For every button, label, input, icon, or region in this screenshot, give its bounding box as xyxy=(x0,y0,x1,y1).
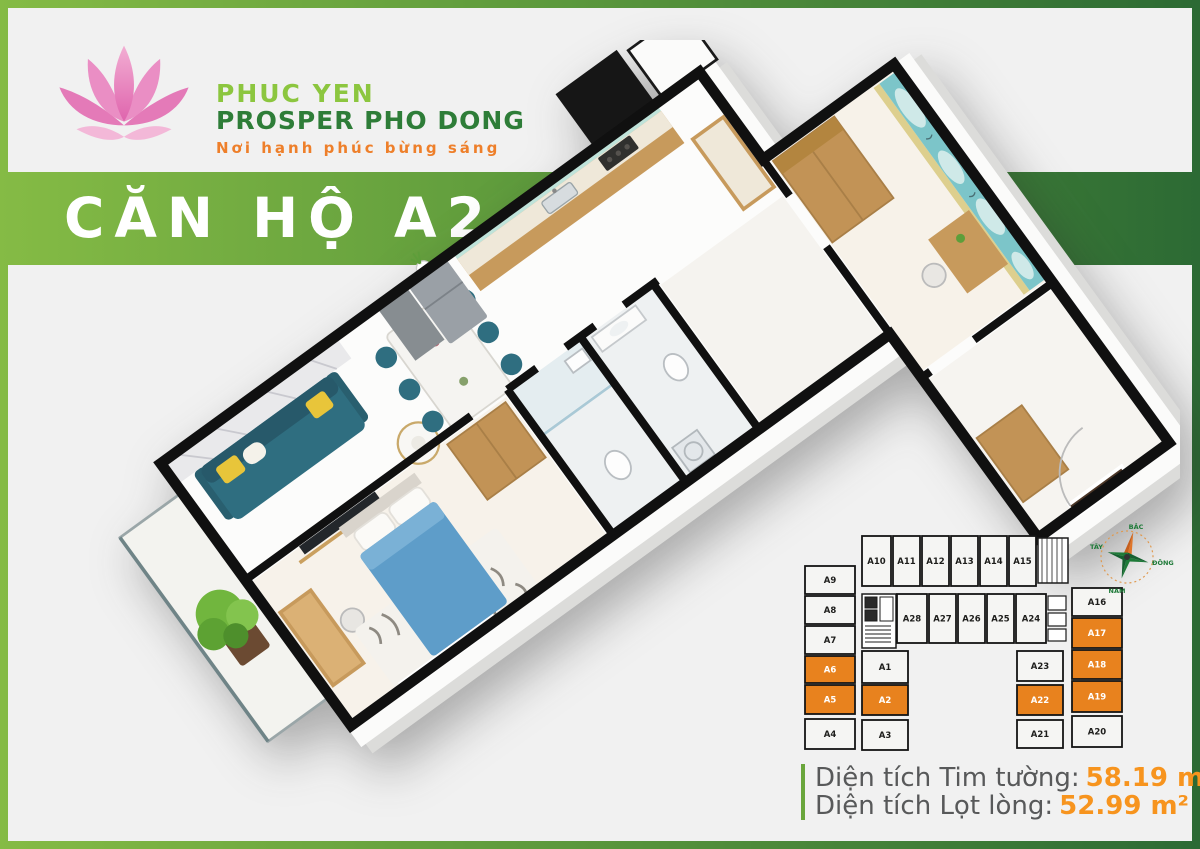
keyplan-unit-label-A2: A2 xyxy=(879,696,892,706)
keyplan-unit-label-A26: A26 xyxy=(962,615,980,625)
area-label-gross: Diện tích Tim tường: xyxy=(815,763,1080,793)
keyplan-unit-label-A12: A12 xyxy=(926,557,944,567)
keyplan-unit-label-A28: A28 xyxy=(903,615,921,625)
keyplan-unit-label-A10: A10 xyxy=(867,557,885,567)
brand-logo: PHUC YEN PROSPER PHO DONG Nơi hạnh phúc … xyxy=(48,36,525,156)
keyplan-unit-label-A27: A27 xyxy=(933,615,951,625)
brand-tagline: Nơi hạnh phúc bừng sáng xyxy=(216,140,525,156)
floor-keyplan: A9A8A7A6A5A4A1A2A3A10A11A12A13A14A15A28A… xyxy=(795,523,1175,771)
keyplan-unit-label-A16: A16 xyxy=(1088,598,1106,608)
keyplan-unit-label-A22: A22 xyxy=(1031,696,1049,706)
keyplan-unit-label-A17: A17 xyxy=(1088,629,1106,639)
keyplan-unit-label-A5: A5 xyxy=(824,696,837,706)
keyplan-unit-label-A11: A11 xyxy=(897,557,915,567)
keyplan-unit-label-A1: A1 xyxy=(879,663,892,673)
keyplan-unit-label-A14: A14 xyxy=(984,557,1002,567)
brand-name-line1: PHUC YEN xyxy=(216,80,525,107)
keyplan-unit-label-A20: A20 xyxy=(1088,728,1106,738)
keyplan-unit-label-A4: A4 xyxy=(824,730,837,740)
area-row-gross: Diện tích Tim tường:58.19 m² xyxy=(815,764,1200,792)
keyplan-unit-label-A13: A13 xyxy=(955,557,973,567)
keyplan-unit-label-A8: A8 xyxy=(824,606,837,616)
compass-west-label: TÂY xyxy=(1090,542,1103,551)
compass-south-label: NAM xyxy=(1109,587,1126,595)
area-value-gross: 58.19 m² xyxy=(1086,763,1200,793)
area-info: Diện tích Tim tường:58.19 m² Diện tích L… xyxy=(801,764,1200,820)
brochure-page: CĂN HỘ A2 PHUC YEN PROSPER PHO DONG Nơi … xyxy=(0,0,1200,849)
keyplan-unit-label-A7: A7 xyxy=(824,636,837,646)
keyplan-unit-label-A21: A21 xyxy=(1031,730,1049,740)
compass-east-label: ĐÔNG xyxy=(1152,558,1174,567)
area-label-net: Diện tích Lọt lòng: xyxy=(815,791,1053,821)
brand-text: PHUC YEN PROSPER PHO DONG Nơi hạnh phúc … xyxy=(216,36,525,156)
keyplan-unit-label-A15: A15 xyxy=(1013,557,1031,567)
compass-north-label: BẮC xyxy=(1129,523,1144,531)
keyplan-unit-label-A23: A23 xyxy=(1031,662,1049,672)
keyplan-unit-label-A9: A9 xyxy=(824,576,837,586)
keyplan-unit-label-A6: A6 xyxy=(824,666,837,676)
keyplan-unit-label-A3: A3 xyxy=(879,731,892,741)
keyplan-units: A9A8A7A6A5A4A1A2A3A10A11A12A13A14A15A28A… xyxy=(805,536,1122,750)
keyplan-unit-label-A19: A19 xyxy=(1088,693,1106,703)
lotus-icon xyxy=(48,36,200,154)
area-row-net: Diện tích Lọt lòng:52.99 m² xyxy=(815,792,1200,820)
compass-icon: BẮC ĐÔNG NAM TÂY xyxy=(1090,523,1174,595)
keyplan-unit-label-A18: A18 xyxy=(1088,661,1106,671)
area-info-accent-bar xyxy=(801,764,805,820)
brand-name-line2: PROSPER PHO DONG xyxy=(216,107,525,134)
area-value-net: 52.99 m² xyxy=(1059,791,1189,821)
keyplan-unit-label-A24: A24 xyxy=(1022,615,1040,625)
keyplan-unit-label-A25: A25 xyxy=(991,615,1009,625)
